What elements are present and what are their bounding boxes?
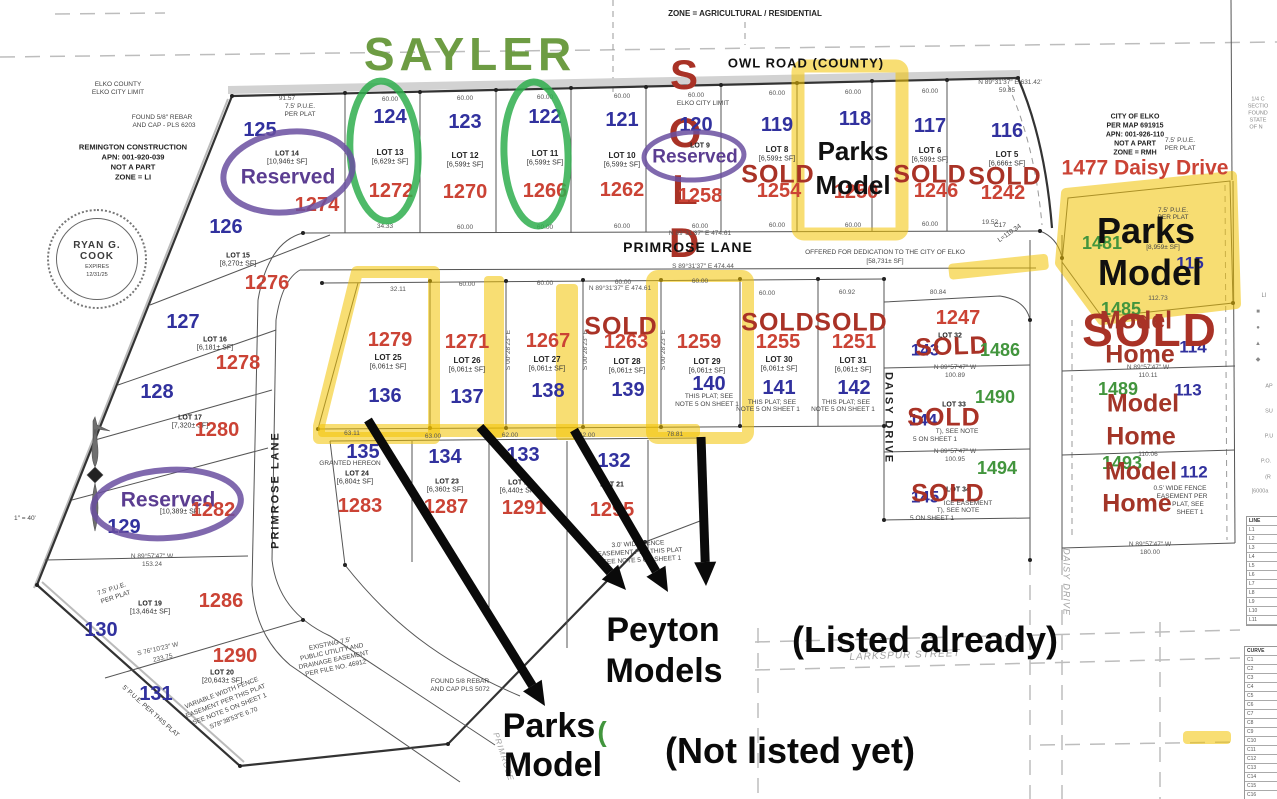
model-home-lot-112: Model: [1105, 460, 1177, 485]
sayler-annotation: SAYLER: [364, 31, 576, 77]
map-label-36: 124: [373, 107, 406, 127]
map-label-42: [6,599± SF]: [447, 162, 483, 169]
map-label-102: N 89°31'37″ E 474.61: [589, 286, 651, 293]
line-table-row: L3: [1247, 544, 1277, 553]
map-label-158: 1490: [975, 388, 1015, 406]
map-label-86: 34.33: [377, 224, 393, 231]
curve-table-row: C16: [1245, 791, 1277, 799]
map-label-201: SHEET 1: [1177, 510, 1204, 517]
map-label-256: GRANTED HEREON: [319, 461, 380, 468]
map-label-145: 1251: [832, 332, 877, 352]
curve-table-row: C7: [1245, 710, 1277, 719]
curve-table-row: C11: [1245, 746, 1277, 755]
map-label-35: 1274: [295, 195, 340, 215]
map-label-235: LOT 19: [138, 601, 162, 608]
map-label-89: 60.00: [614, 224, 630, 231]
map-label-218: 1276: [245, 273, 290, 293]
map-label-268: 132: [597, 451, 630, 471]
map-label-100: OFFERED FOR DEDICATION TO THE CITY OF EL…: [805, 250, 965, 257]
map-label-215: 126: [209, 217, 242, 237]
curve-table-row: C13: [1245, 764, 1277, 773]
map-label-133: NOTE 5 ON SHEET 1: [675, 402, 739, 409]
map-label-51: 1262: [600, 180, 645, 200]
map-label-107: 60.00: [692, 279, 708, 286]
map-label-47: 1266: [523, 181, 568, 201]
map-label-260: 134: [428, 447, 461, 467]
map-label-166: 1494: [977, 459, 1017, 477]
map-label-38: [6,629± SF]: [372, 159, 408, 166]
north-arrow-icon: [70, 415, 120, 535]
curve-table: CURVEC1C2C3C4C5C6C7C8C9C10C11C12C13C14C1…: [1244, 646, 1277, 799]
map-label-198: 0.5' WIDE FENCE: [1154, 486, 1207, 493]
map-label-124: 1263: [604, 332, 649, 352]
line-table: LINEL1L2L3L4L5L6L7L8L9L10L11: [1246, 516, 1277, 626]
map-label-4: ELKO CITY LIMIT: [92, 90, 144, 97]
map-label-64: Model: [815, 172, 890, 198]
map-label-258: [6,804± SF]: [337, 479, 373, 486]
sold-vertical-s: S: [670, 54, 698, 96]
curve-table-row: C4: [1245, 683, 1277, 692]
line-table-row: L1: [1247, 526, 1277, 535]
curve-table-row: C14: [1245, 773, 1277, 782]
map-label-161: SOLD: [907, 406, 980, 431]
map-label-49: LOT 10: [608, 152, 635, 160]
map-label-45: LOT 11: [532, 150, 559, 158]
map-label-112: LOT 25: [374, 354, 401, 362]
map-label-226: 1280: [195, 420, 240, 440]
map-label-83: FOUND: [1248, 111, 1268, 117]
map-label-156: N 89°57'47″ W: [934, 365, 976, 372]
map-label-110: 80.84: [930, 290, 946, 297]
map-label-245: 1290: [213, 646, 258, 666]
map-label-113: [6,061± SF]: [370, 364, 406, 371]
curve-table-header: CURVE: [1245, 647, 1277, 656]
line-table-row: L5: [1247, 562, 1277, 571]
map-label-274: 63.11: [344, 431, 360, 438]
stamp-expires: EXPIRES: [85, 264, 109, 270]
map-label-52: 120: [679, 115, 712, 135]
map-label-129: LOT 29: [693, 358, 720, 366]
map-label-32: LOT 14: [275, 151, 299, 158]
daisy-drive-address: 1477 Daisy Drive: [1062, 158, 1229, 179]
map-label-162: T), SEE NOTE: [936, 429, 979, 436]
map-label-46: [6,599± SF]: [527, 160, 563, 167]
map-label-76: PER MAP 691915: [1106, 123, 1163, 130]
map-label-282: DAISY DRIVE: [1062, 548, 1071, 616]
map-label-154: SOLD: [915, 333, 989, 361]
line-table-row: L8: [1247, 589, 1277, 598]
curve-table-row: C1: [1245, 656, 1277, 665]
parks-model-lot-115: Parks: [1097, 213, 1195, 249]
map-labels: SAYLERZONE = AGRICULTURAL / RESIDENTIALO…: [0, 0, 1277, 799]
reserved-lot-125: Reserved: [241, 167, 336, 188]
map-label-233: 153.24: [142, 562, 162, 569]
map-label-15: 60.00: [614, 94, 630, 101]
map-label-202: N 89°57'47″ W: [1129, 542, 1171, 549]
map-label-28: APN: 001-920-039: [102, 153, 165, 161]
map-label-6: N 89°31'37″ E 631.42': [978, 80, 1041, 87]
map-label-289: Model: [504, 748, 602, 782]
scale-note: 1″ = 40': [14, 516, 36, 523]
map-label-114: 136: [368, 386, 401, 406]
map-label-262: [6,360± SF]: [427, 487, 463, 494]
map-label-131: 140: [692, 374, 725, 394]
curve-table-row: C8: [1245, 719, 1277, 728]
map-label-229: 1282: [191, 500, 236, 520]
map-label-127: 139: [611, 380, 644, 400]
owl-road-label: OWL ROAD (COUNTY): [728, 57, 884, 70]
map-label-192: Home: [1106, 425, 1175, 450]
map-label-232: N 89°57'47″ W: [131, 554, 173, 561]
peyton-models-annotation: Peyton: [606, 613, 719, 647]
line-table-row: L6: [1247, 571, 1277, 580]
map-label-210: LI: [1261, 293, 1266, 299]
map-label-87: 60.00: [457, 225, 473, 232]
map-label-85: OF N: [1249, 125, 1262, 131]
map-label-60: 1254: [757, 181, 802, 201]
surveyor-stamp: RYAN G. COOK EXPIRES 12/31/25: [47, 209, 147, 309]
map-label-217: [8,270± SF]: [220, 261, 256, 268]
daisy-drive-label: DAISY DRIVE: [883, 372, 894, 464]
primrose-lane-label: PRIMROSE LANE: [623, 240, 753, 254]
line-table-row: L4: [1247, 553, 1277, 562]
map-label-187: N 89°57'47″ W: [1127, 365, 1169, 372]
curve-table-row: C3: [1245, 674, 1277, 683]
map-label-61: 118: [839, 109, 871, 129]
map-label-93: 60.00: [922, 222, 938, 229]
map-label-92: 60.00: [845, 223, 861, 230]
map-label-12: 60.00: [382, 97, 398, 104]
map-label-265: LOT 22: [508, 480, 532, 487]
map-label-101: [58,731± SF]: [866, 259, 903, 266]
sold-lot-114: SOLD: [1082, 307, 1218, 353]
map-label-27: REMINGTON CONSTRUCTION: [79, 143, 187, 151]
map-label-165: 100.95: [945, 457, 965, 464]
map-label-125: LOT 28: [613, 358, 640, 366]
map-label-203: 180.00: [1140, 550, 1160, 557]
map-label-134: S 00°28'23″ E: [506, 330, 513, 370]
map-label-106: 60.00: [615, 280, 631, 287]
map-label-16: 60.00: [688, 93, 704, 100]
map-label-261: LOT 23: [435, 479, 459, 486]
map-label-222: 1278: [216, 353, 261, 373]
map-label-164: N 89°57'47″ W: [934, 449, 976, 456]
map-label-266: [6,440± SF]: [500, 488, 536, 495]
map-label-31: 125: [243, 120, 276, 140]
map-label-19: 60.00: [922, 89, 938, 96]
map-label-23: 7.5' P.U.E.: [1165, 138, 1195, 145]
map-label-11: 91.57: [279, 96, 295, 103]
map-label-148: 142: [837, 378, 870, 398]
map-label-108: 60.00: [759, 291, 775, 298]
map-label-211: ■: [1256, 309, 1260, 315]
map-label-237: 1286: [199, 591, 244, 611]
line-table-row: L9: [1247, 598, 1277, 607]
map-label-204: AP: [1265, 384, 1272, 390]
map-label-95: C17: [994, 223, 1006, 230]
map-label-273: SEE NOTE 5 ON SHEET 1: [603, 556, 682, 567]
map-label-199: EASEMENT PER: [1157, 494, 1208, 501]
map-label-243: LOT 20: [210, 670, 234, 677]
map-label-21: 7.5' P.U.E.: [285, 104, 315, 111]
curve-table-row: C9: [1245, 728, 1277, 737]
map-label-44: 122: [528, 107, 561, 127]
line-table-row: L10: [1247, 607, 1277, 616]
map-label-216: LOT 15: [226, 253, 250, 260]
map-label-171: T), SEE NOTE: [937, 508, 980, 515]
map-label-212: ●: [1256, 325, 1260, 331]
map-label-103: 32.11: [390, 287, 406, 294]
map-label-119: 1267: [526, 331, 571, 351]
map-label-26: AND CAP - PLS 6203: [132, 123, 195, 130]
map-label-65: 117: [914, 116, 946, 136]
map-label-157: 100.89: [945, 373, 965, 380]
map-label-275: 63.00: [425, 434, 441, 441]
map-label-276: 62.00: [502, 433, 518, 440]
map-label-208: (R: [1265, 475, 1271, 481]
map-label-234: 130: [84, 620, 117, 640]
map-label-214: ◆: [1256, 357, 1261, 363]
map-label-18: 60.00: [845, 90, 861, 97]
model-home-lot-113: Model: [1107, 392, 1179, 417]
map-label-17: 60.00: [769, 91, 785, 98]
map-label-221: [6,181± SF]: [197, 345, 233, 352]
map-label-278: 78.81: [667, 432, 683, 439]
map-label-150: NOTE 5 ON SHEET 1: [811, 407, 875, 414]
plat-map: SAYLERZONE = AGRICULTURAL / RESIDENTIALO…: [0, 0, 1277, 799]
map-label-48: 121: [605, 110, 638, 130]
listed-already-annotation: (Listed already): [792, 622, 1058, 658]
map-label-128: 1259: [677, 332, 722, 352]
map-label-117: [6,061± SF]: [449, 367, 485, 374]
map-label-71: LOT 5: [996, 151, 1019, 159]
parks-model-annotation: Parks: [503, 709, 596, 743]
map-label-136: S 00°28'23″ E: [661, 330, 668, 370]
map-label-22: PER PLAT: [285, 112, 316, 119]
curve-table-row: C15: [1245, 782, 1277, 791]
map-label-104: 60.00: [459, 282, 475, 289]
map-label-98: N 89°31'37″ E 474.61: [669, 231, 731, 238]
map-label-66: LOT 6: [919, 147, 942, 155]
map-label-70: 116: [991, 121, 1023, 141]
map-label-143: NOTE 5 ON SHEET 1: [736, 407, 800, 414]
map-label-279: FOUND 5/8 REBAR: [431, 679, 489, 686]
map-label-188: 110.11: [1139, 373, 1158, 380]
parks-model-lot-118: Parks: [818, 138, 889, 164]
map-label-207: P.O.: [1261, 459, 1271, 465]
stamp-name-line2: COOK: [80, 251, 114, 262]
line-table-row: L11: [1247, 616, 1277, 625]
map-label-24: PER PLAT: [1165, 146, 1196, 153]
map-label-259: 1283: [338, 496, 383, 516]
line-table-header: LINE: [1247, 517, 1277, 526]
curve-table-row: C5: [1245, 692, 1277, 701]
map-label-181: 112.73: [1148, 296, 1167, 303]
map-label-219: 127: [166, 312, 199, 332]
map-label-213: ▲: [1255, 341, 1261, 347]
map-label-43: 1270: [443, 182, 488, 202]
map-label-20: 59.85: [999, 88, 1015, 95]
map-label-139: LOT 30: [765, 356, 792, 364]
map-label-172: 5 ON SHEET 1: [910, 516, 954, 523]
map-label-163: 5 ON SHEET 1: [913, 437, 957, 444]
map-label-77: APN: 001-926-110: [1106, 132, 1164, 139]
map-label-277: 62.00: [579, 433, 595, 440]
map-label-121: [6,061± SF]: [529, 366, 565, 373]
map-label-267: 1291: [502, 498, 547, 518]
curve-table-row: C10: [1245, 737, 1277, 746]
map-label-270: 1295: [590, 500, 635, 520]
map-label-135: S 00°28'23″ E: [583, 330, 590, 370]
curve-table-row: C12: [1245, 755, 1277, 764]
map-label-200: PLAT, SEE: [1172, 502, 1204, 509]
map-label-120: LOT 27: [533, 356, 560, 364]
map-label-122: 138: [531, 381, 564, 401]
map-label-280: AND CAP PLS 5072: [430, 687, 489, 694]
map-label-69: 1246: [914, 181, 959, 201]
map-label-79: ZONE = RMH: [1113, 150, 1156, 157]
map-label-84: STATE: [1250, 118, 1267, 124]
map-label-99: S 89°31'37″ E 474.44: [672, 264, 734, 271]
map-label-74: 1242: [981, 183, 1026, 203]
map-label-3: ELKO COUNTY: [95, 82, 142, 89]
curve-table-row: C6: [1245, 701, 1277, 710]
map-label-126: [6,061± SF]: [609, 368, 645, 375]
map-label-75: CITY OF ELKO: [1111, 114, 1160, 121]
map-label-78: NOT A PART: [1114, 141, 1156, 148]
map-label-1: ZONE = AGRICULTURAL / RESIDENTIAL: [668, 10, 822, 18]
map-label-180: Model: [1098, 255, 1202, 291]
stamp-expire-date: 12/31/25: [86, 272, 107, 278]
line-table-row: L7: [1247, 580, 1277, 589]
map-label-33: [10,946± SF]: [267, 159, 307, 166]
map-label-57: LOT 8: [766, 146, 789, 154]
map-label-141: 141: [762, 378, 795, 398]
map-label-88: 60.00: [537, 225, 553, 232]
map-label-263: 1287: [424, 497, 469, 517]
map-label-115: 1271: [445, 332, 490, 352]
map-label-109: 60.92: [839, 290, 855, 297]
primrose-lane-vertical-label: PRIMROSE LANE: [271, 431, 282, 549]
reserved-lot-120: Reserved: [652, 148, 738, 167]
map-label-39: 1272: [369, 181, 414, 201]
map-label-140: [6,061± SF]: [761, 366, 797, 373]
curve-table-row: C2: [1245, 665, 1277, 674]
map-label-37: LOT 13: [376, 149, 403, 157]
map-label-56: 119: [761, 115, 793, 135]
map-label-91: 60.00: [769, 223, 785, 230]
map-label-236: [13,464± SF]: [130, 609, 170, 616]
map-label-41: LOT 12: [451, 152, 478, 160]
map-label-14: 60.00: [537, 95, 553, 102]
map-label-220: LOT 16: [203, 337, 227, 344]
map-label-209: [6000a: [1252, 489, 1269, 495]
map-label-223: 128: [140, 382, 173, 402]
map-label-82: SECTIO: [1248, 104, 1268, 110]
line-table-row: L2: [1247, 535, 1277, 544]
map-label-132: THIS PLAT; SEE: [685, 394, 733, 401]
map-label-147: [6,061± SF]: [835, 367, 871, 374]
map-label-241: 233.75: [153, 654, 174, 665]
map-label-138: 1255: [756, 332, 801, 352]
map-label-50: [6,599± SF]: [604, 162, 640, 169]
map-label-30: ZONE = LI: [115, 173, 151, 181]
map-label-146: LOT 31: [839, 357, 866, 365]
map-label-111: 1279: [368, 330, 413, 350]
map-label-285: Models: [605, 654, 722, 688]
map-label-5: ELKO CITY LIMIT: [677, 101, 729, 108]
map-label-206: P.U: [1265, 434, 1273, 440]
map-label-155: 1486: [980, 341, 1020, 359]
map-label-257: LOT 24: [345, 471, 369, 478]
map-label-29: NOT A PART: [111, 163, 156, 171]
map-label-195: 112: [1180, 464, 1207, 481]
map-label-40: 123: [448, 112, 481, 132]
map-label-264: 133: [506, 445, 539, 465]
map-label-287: (: [597, 718, 606, 746]
stamp-name-line1: RYAN G.: [73, 240, 120, 251]
map-label-118: 137: [450, 387, 483, 407]
map-label-151: 1247: [936, 308, 981, 328]
map-label-13: 60.00: [457, 96, 473, 103]
map-label-105: 60.00: [537, 281, 553, 288]
map-label-205: SU: [1265, 409, 1273, 415]
map-label-25: FOUND 5/8″ REBAR: [132, 115, 192, 122]
map-label-269: LOT 21: [600, 482, 624, 489]
map-label-116: LOT 26: [453, 357, 480, 365]
not-listed-yet-annotation: (Not listed yet): [665, 733, 915, 769]
map-label-55: 1258: [678, 186, 723, 206]
map-label-81: 1/4 C: [1251, 97, 1264, 103]
